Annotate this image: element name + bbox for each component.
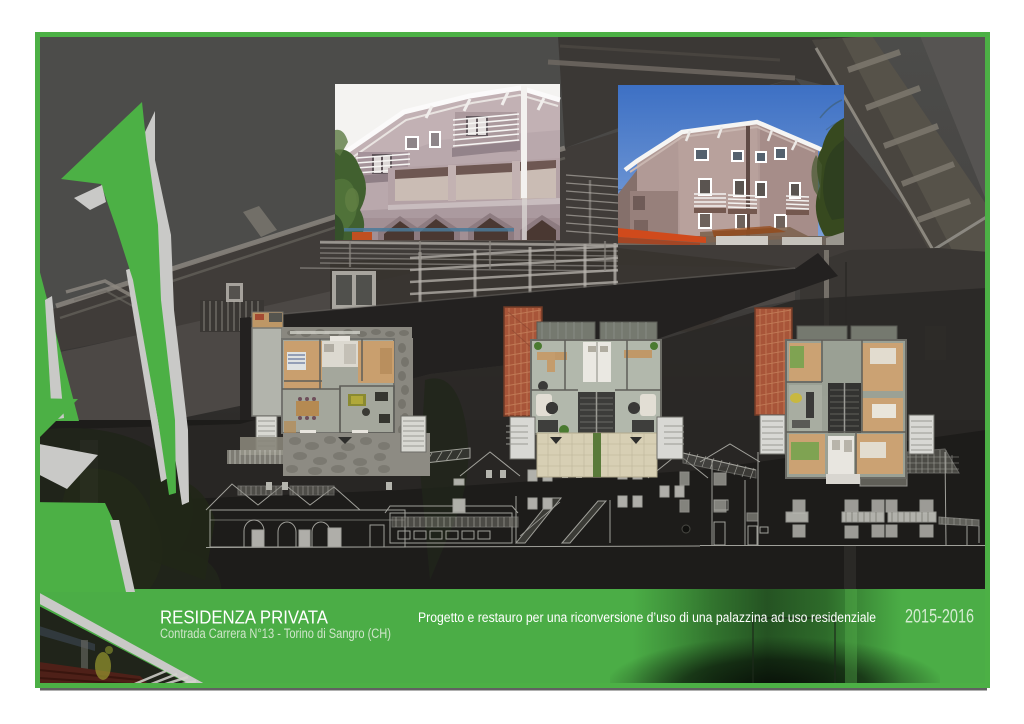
svg-text:2015-2016: 2015-2016 (905, 606, 974, 628)
svg-text:Progetto e restauro per una ri: Progetto e restauro per una riconversion… (418, 610, 876, 625)
svg-text:Contrada Carrera N°13 - Torino: Contrada Carrera N°13 - Torino di Sangro… (160, 626, 391, 641)
svg-text:RESIDENZA PRIVATA: RESIDENZA PRIVATA (160, 608, 328, 628)
